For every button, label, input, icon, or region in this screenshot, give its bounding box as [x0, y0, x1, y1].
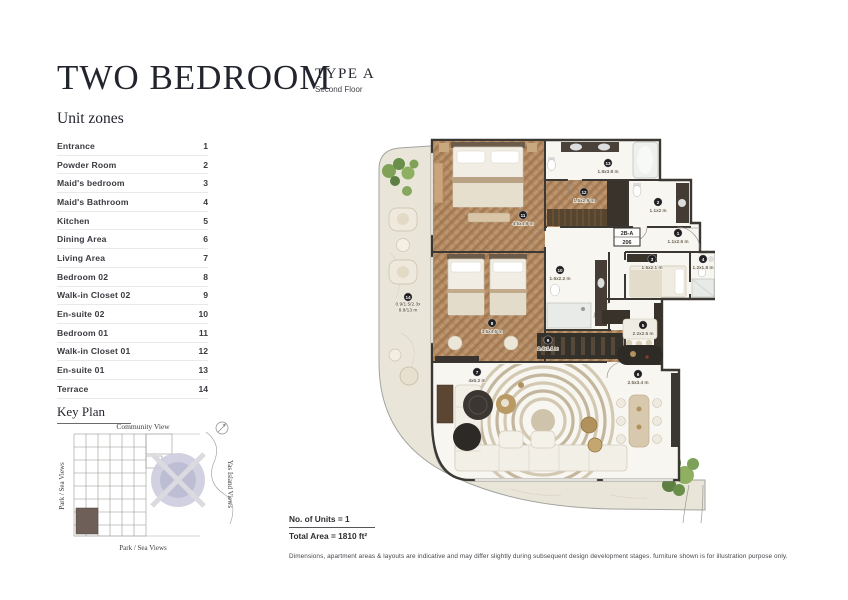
zone-number: 2 — [203, 160, 208, 170]
unit-zones-heading: Unit zones — [57, 110, 124, 128]
zone-number: 5 — [203, 216, 208, 226]
key-plan-unit-highlight — [76, 508, 98, 534]
total-area: Total Area = 1810 ft² — [289, 528, 375, 541]
svg-text:2.5x3.4 m: 2.5x3.4 m — [627, 380, 648, 386]
svg-text:5: 5 — [642, 323, 645, 328]
zone-label: En-suite 01 — [57, 365, 105, 375]
zone-number: 12 — [198, 346, 208, 356]
svg-text:2: 2 — [657, 200, 660, 205]
zone-row: Maid's bedroom3 — [57, 174, 208, 193]
svg-text:13: 13 — [605, 161, 611, 166]
disclaimer-text: Dimensions, apartment areas & layouts ar… — [289, 553, 837, 560]
site-lagoon — [151, 432, 233, 524]
svg-text:14: 14 — [405, 295, 411, 300]
zone-label: Bedroom 02 — [57, 272, 108, 282]
svg-text:6: 6 — [637, 372, 640, 377]
unit-type-label: TYPE A — [315, 66, 375, 83]
svg-text:4: 4 — [702, 257, 705, 262]
zone-label: Dining Area — [57, 234, 107, 244]
svg-text:1.6x2.2 m: 1.6x2.2 m — [549, 276, 570, 282]
zone-row: Walk-in Closet 0112 — [57, 343, 208, 362]
svg-text:11: 11 — [521, 213, 526, 218]
svg-text:0.9/1.5/2.3x: 0.9/1.5/2.3x — [395, 302, 421, 308]
zone-label: Maid's Bathroom — [57, 197, 129, 207]
zone-row: Living Area7 — [57, 249, 208, 268]
unit-number-badge: 2B-A 206 — [614, 228, 640, 246]
svg-text:7: 7 — [476, 370, 479, 375]
zone-number: 7 — [203, 253, 208, 263]
zone-row: Terrace14 — [57, 380, 208, 399]
svg-text:2.2x2.6 m: 2.2x2.6 m — [632, 331, 653, 337]
svg-text:3.5x4.5 m: 3.5x4.5 m — [481, 329, 502, 335]
key-plan-top-label: Community View — [116, 422, 170, 431]
zone-row: Dining Area6 — [57, 230, 208, 249]
zone-number: 14 — [198, 384, 208, 394]
zone-row: Powder Room2 — [57, 156, 208, 175]
zone-number: 6 — [203, 234, 208, 244]
svg-text:12: 12 — [581, 190, 587, 195]
zone-number: 1 — [203, 141, 208, 151]
zone-row: Kitchen5 — [57, 212, 208, 231]
svg-text:9: 9 — [547, 338, 550, 343]
svg-text:1.2x1.8 m: 1.2x1.8 m — [692, 265, 713, 271]
zone-label: Walk-in Closet 01 — [57, 346, 130, 356]
zone-row: Walk-in Closet 029 — [57, 287, 208, 306]
compass-icon — [216, 422, 228, 434]
zone-row: Bedroom 0111 — [57, 324, 208, 343]
zone-row: En-suite 0210 — [57, 305, 208, 324]
key-plan-map: Community View Park / Sea Views Yas Isl — [50, 418, 240, 568]
zone-row: Entrance1 — [57, 137, 208, 156]
svg-text:1.8x3.8 m: 1.8x3.8 m — [597, 169, 618, 175]
zone-label: Kitchen — [57, 216, 90, 226]
zone-number: 9 — [203, 290, 208, 300]
zone-number: 13 — [198, 365, 208, 375]
key-plan-right-label: Yas Island Views — [226, 460, 234, 508]
svg-text:2.4x1.1 m: 2.4x1.1 m — [537, 346, 558, 352]
svg-text:4.5x4.8 m: 4.5x4.8 m — [512, 221, 533, 227]
zone-row: Bedroom 028 — [57, 268, 208, 287]
key-plan-left-label: Park / Sea Views — [58, 462, 66, 510]
zone-row: En-suite 0113 — [57, 361, 208, 380]
units-count: No. of Units = 1 — [289, 514, 375, 528]
svg-text:4x6.2 m: 4x6.2 m — [468, 378, 485, 384]
unit-summary: No. of Units = 1 Total Area = 1810 ft² — [289, 514, 375, 541]
svg-text:1.5x2.9 m: 1.5x2.9 m — [573, 198, 594, 204]
floor-label: Second Floor — [315, 85, 375, 94]
zone-number: 10 — [198, 309, 208, 319]
zone-number: 11 — [199, 328, 208, 338]
zone-number: 3 — [203, 178, 208, 188]
zone-label: Powder Room — [57, 160, 116, 170]
zone-number: 4 — [203, 197, 208, 207]
svg-text:8: 8 — [491, 321, 494, 326]
svg-text:1.1x2 m: 1.1x2 m — [649, 208, 666, 214]
page-title: TWO BEDROOM — [57, 58, 331, 98]
brochure-page: TWO BEDROOM TYPE A Second Floor Unit zon… — [0, 0, 848, 600]
unit-badge-number: 206 — [623, 240, 632, 246]
svg-text:1.5x2.1 m: 1.5x2.1 m — [641, 265, 662, 271]
zone-row: Maid's Bathroom4 — [57, 193, 208, 212]
unit-zones-list: Entrance1Powder Room2Maid's bedroom3Maid… — [57, 137, 208, 399]
svg-text:8.8/13 m: 8.8/13 m — [399, 308, 418, 314]
zone-label: Walk-in Closet 02 — [57, 290, 130, 300]
svg-text:10: 10 — [557, 268, 563, 273]
zone-label: En-suite 02 — [57, 309, 105, 319]
unit-type-block: TYPE A Second Floor — [315, 66, 375, 94]
zone-number: 8 — [203, 272, 208, 282]
zone-label: Living Area — [57, 253, 105, 263]
key-plan-bottom-label: Park / Sea Views — [119, 544, 167, 552]
svg-text:1: 1 — [677, 231, 680, 236]
zone-label: Maid's bedroom — [57, 178, 125, 188]
zone-label: Entrance — [57, 141, 95, 151]
unit-badge-type: 2B-A — [621, 231, 634, 237]
floor-plan: 2B-A 206 11.1x2.6 m21.1x2 m31.5x2.1 m41.… — [371, 133, 715, 523]
zone-label: Terrace — [57, 384, 88, 394]
zone-label: Bedroom 01 — [57, 328, 108, 338]
svg-text:3: 3 — [651, 257, 654, 262]
svg-text:1.1x2.6 m: 1.1x2.6 m — [667, 239, 688, 245]
